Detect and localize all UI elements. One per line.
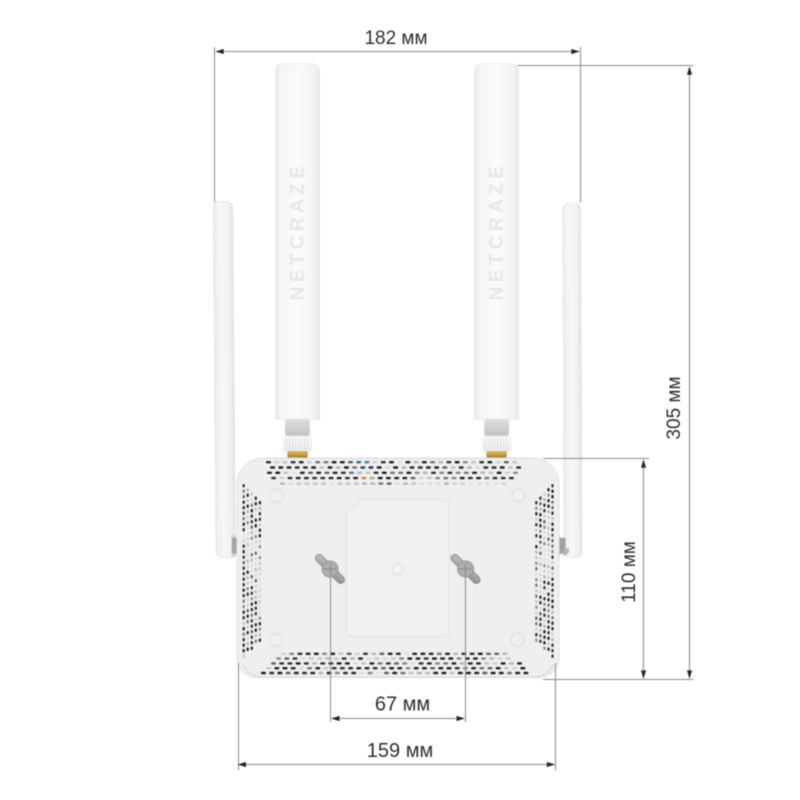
svg-text:NETCRAZE: NETCRAZE xyxy=(287,162,308,301)
svg-text:NETCRAZE: NETCRAZE xyxy=(486,162,507,301)
svg-text:182 мм: 182 мм xyxy=(364,28,427,49)
svg-text:305 мм: 305 мм xyxy=(664,376,685,439)
svg-text:67 мм: 67 мм xyxy=(375,694,430,716)
svg-text:110 мм: 110 мм xyxy=(619,541,640,603)
svg-text:159 мм: 159 мм xyxy=(367,740,433,762)
